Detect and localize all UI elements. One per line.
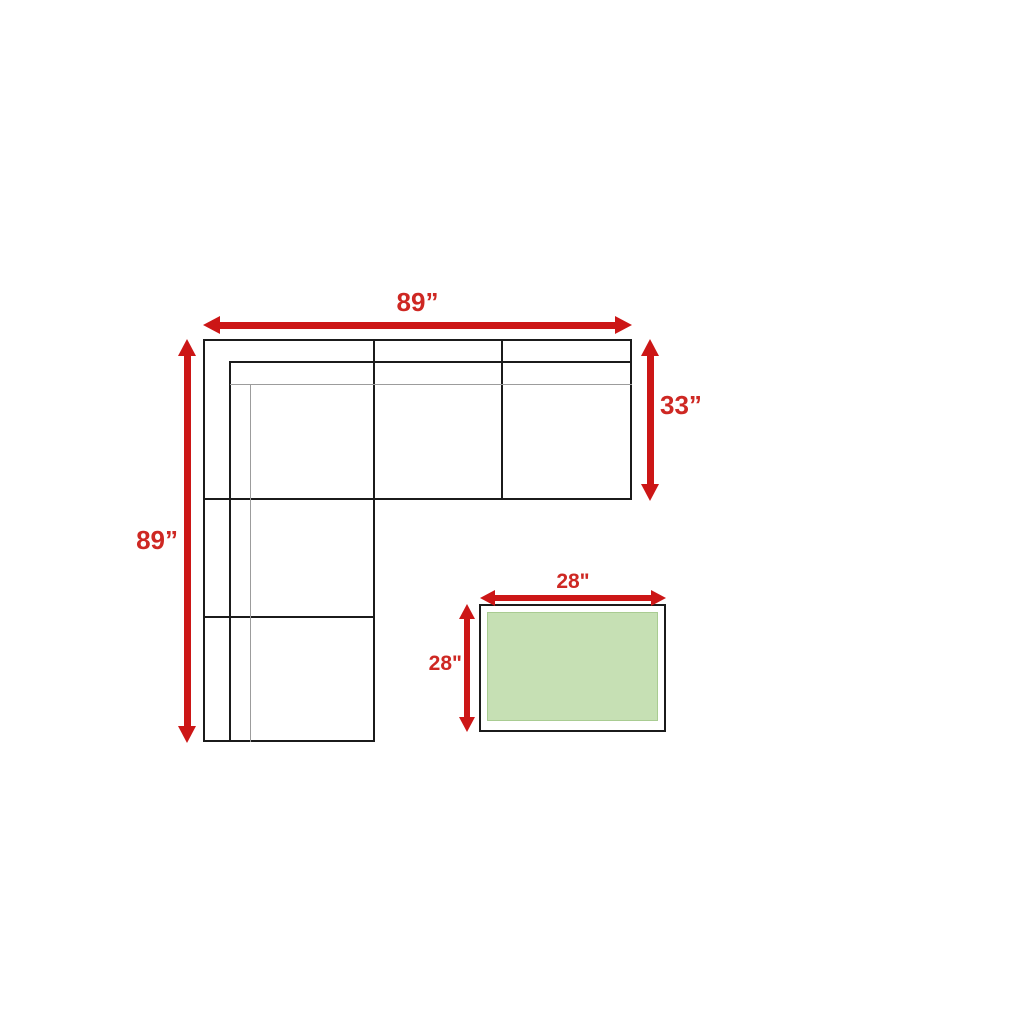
- arrow-shaft: [220, 322, 615, 329]
- sofa-backrest-line-top: [229, 361, 632, 363]
- table-top-surface: [487, 612, 658, 721]
- arrow-head-down-icon: [641, 484, 659, 501]
- arrow-head-right-icon: [615, 316, 632, 334]
- dimension-label-sofa-left-length: 89”: [120, 527, 178, 553]
- arrow-head-up-icon: [459, 604, 475, 619]
- dimension-label-sofa-right-depth: 33”: [660, 392, 702, 418]
- sofa-cushion-line-left: [250, 385, 251, 742]
- sofa-backrest-line-left: [229, 361, 231, 742]
- dimension-label-sofa-width: 89”: [203, 289, 632, 315]
- arrow-head-right-icon: [651, 590, 666, 606]
- dimension-arrow-sofa-width: [203, 316, 632, 334]
- arrow-shaft: [647, 356, 654, 484]
- dimension-label-table-depth: 28": [414, 653, 462, 674]
- arrow-head-left-icon: [203, 316, 220, 334]
- arrow-head-up-icon: [641, 339, 659, 356]
- arrow-head-left-icon: [480, 590, 495, 606]
- arrow-head-up-icon: [178, 339, 196, 356]
- arrow-shaft: [464, 619, 470, 717]
- arrow-shaft: [184, 356, 191, 726]
- dimension-arrow-sofa-right-depth: [641, 339, 659, 501]
- arrow-shaft: [495, 595, 651, 601]
- furniture-dimension-diagram: 89” 89” 33” 28" 28": [0, 0, 1024, 1024]
- sofa-cushion-line-top: [230, 384, 632, 385]
- arrow-head-down-icon: [178, 726, 196, 743]
- dimension-label-table-width: 28": [480, 571, 666, 592]
- sofa-seat-divider-vertical: [501, 339, 503, 500]
- arrow-head-down-icon: [459, 717, 475, 732]
- dimension-arrow-sofa-left-length: [178, 339, 196, 743]
